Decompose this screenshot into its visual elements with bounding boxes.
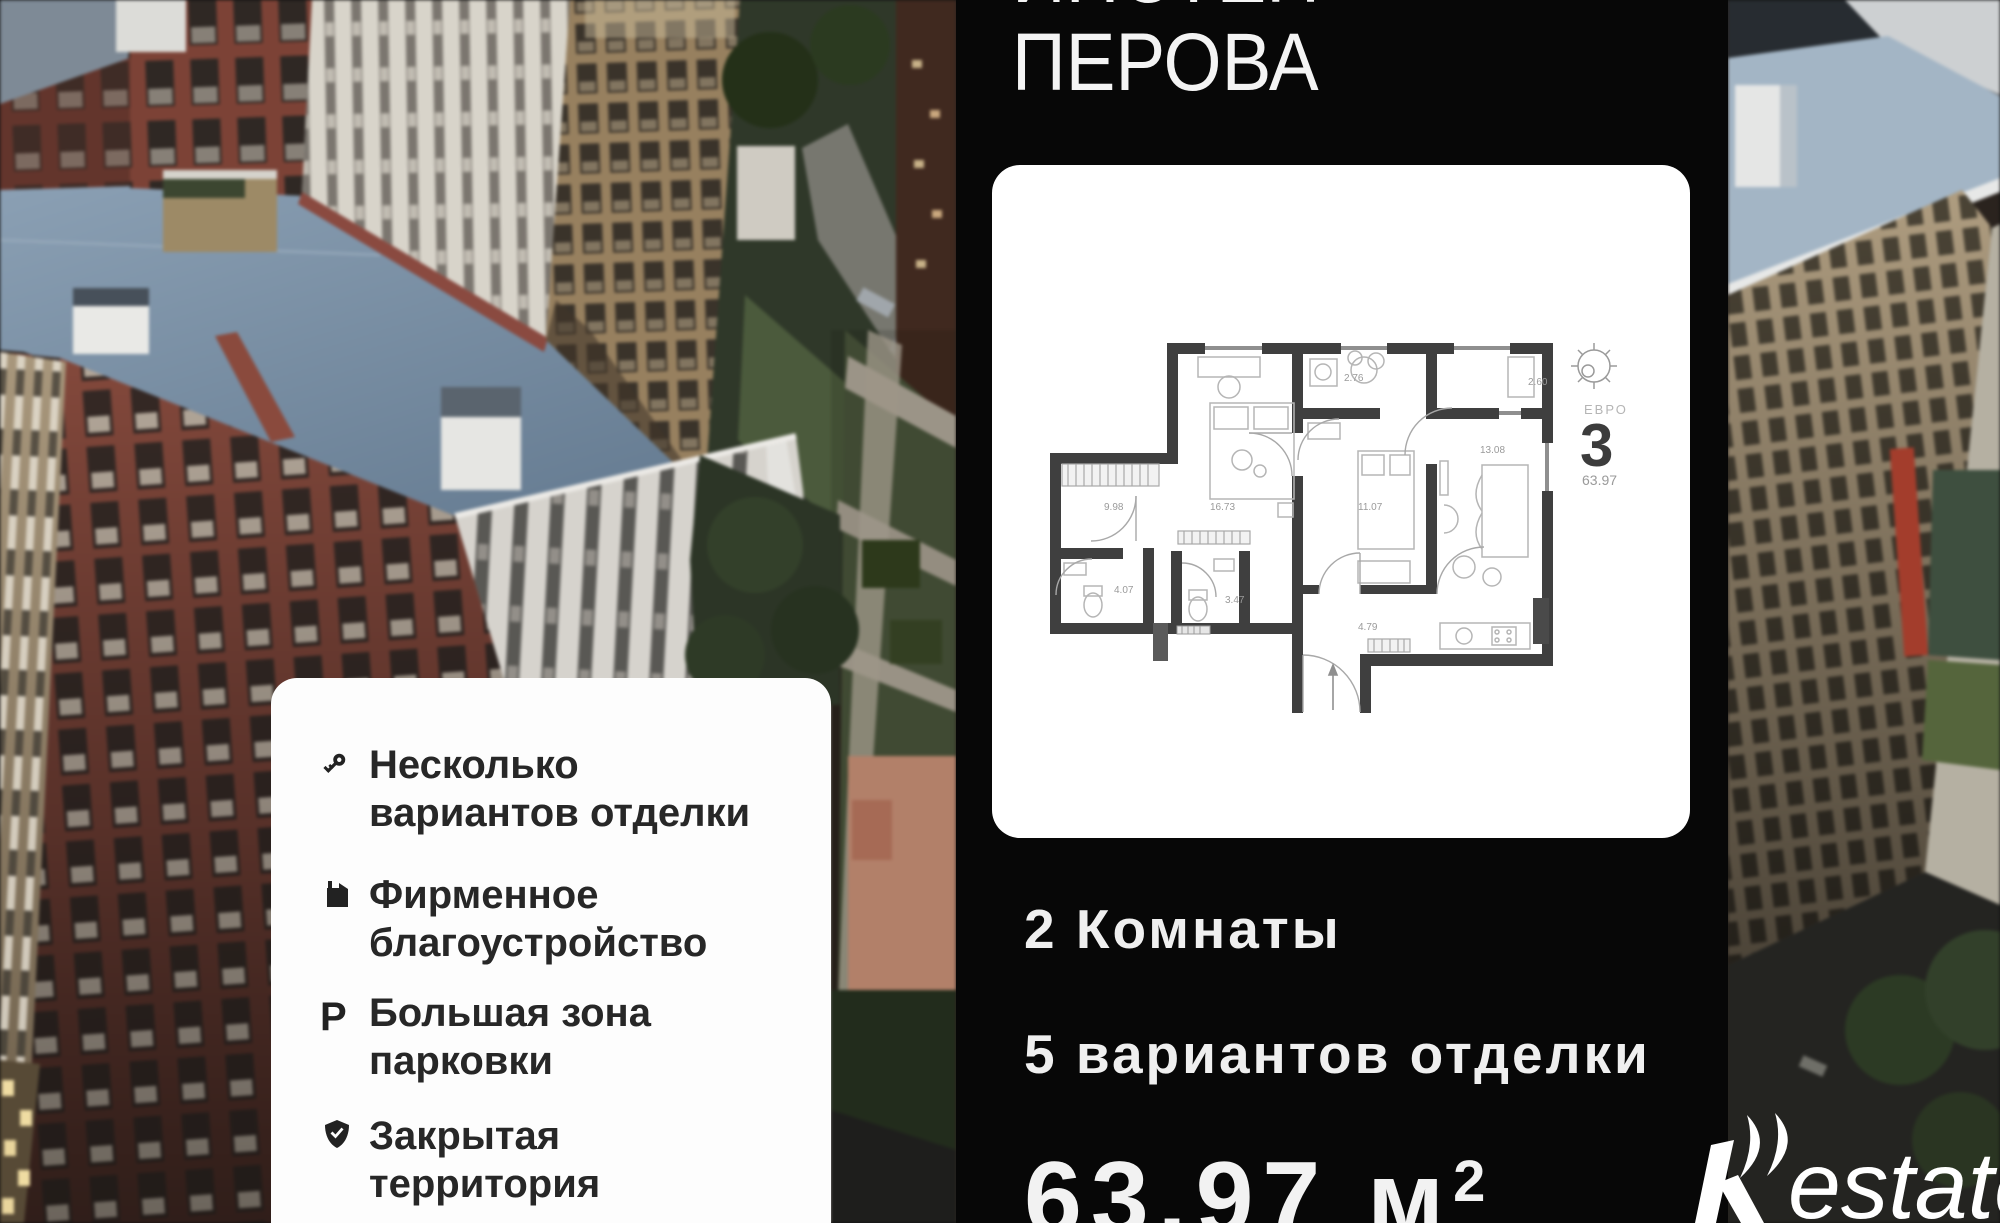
svg-text:2.76: 2.76	[1344, 373, 1364, 384]
svg-text:11.07: 11.07	[1358, 502, 1383, 513]
svg-text:16.73: 16.73	[1210, 502, 1235, 513]
svg-text:estate: estate	[1788, 1133, 2000, 1223]
svg-text:63.97: 63.97	[1582, 472, 1617, 488]
svg-text:3.47: 3.47	[1225, 595, 1245, 606]
svg-text:4.07: 4.07	[1114, 585, 1134, 596]
svg-text:2.60: 2.60	[1528, 377, 1548, 388]
svg-text:13.08: 13.08	[1480, 445, 1505, 456]
svg-text:4.79: 4.79	[1358, 622, 1378, 633]
svg-text:3: 3	[1580, 412, 1613, 479]
svg-text:9.98: 9.98	[1104, 502, 1124, 513]
